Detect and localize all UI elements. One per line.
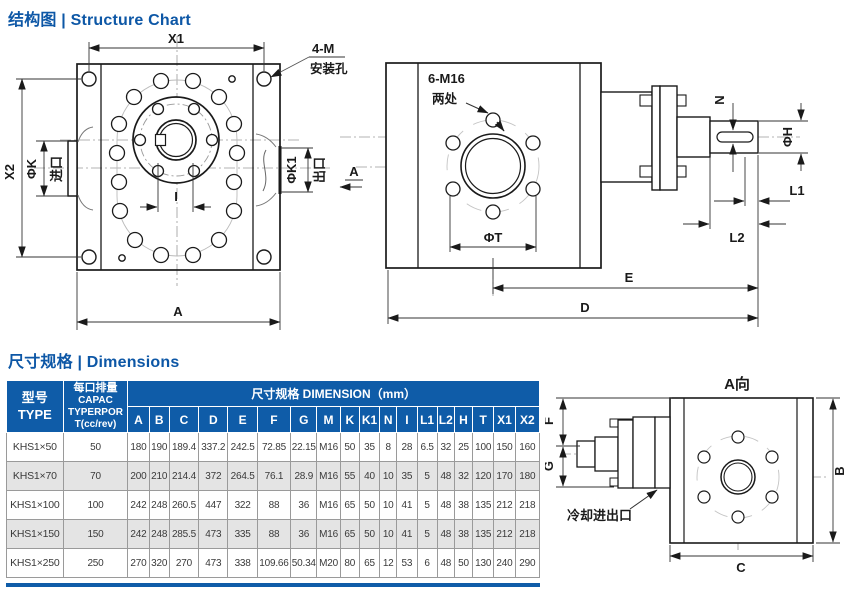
col-header-type-en: TYPE bbox=[7, 407, 63, 423]
col-K: K bbox=[340, 407, 359, 433]
dim-cell: 260.5 bbox=[169, 491, 198, 520]
dim-cell: 100 bbox=[473, 433, 494, 462]
dim-cell: 35 bbox=[397, 462, 417, 491]
col-L2: L2 bbox=[437, 407, 454, 433]
dim-l1 bbox=[714, 155, 790, 327]
dim-cell: 447 bbox=[199, 491, 228, 520]
dim-cell: 10 bbox=[380, 520, 397, 549]
dim-cell: 320 bbox=[149, 549, 169, 578]
dim-cell: 50.34 bbox=[291, 549, 317, 578]
dim-cell: M16 bbox=[317, 433, 340, 462]
bolt-note-label: 6-M16 bbox=[428, 71, 465, 86]
dim-g-label: G bbox=[545, 461, 556, 471]
cooling-port-label: 冷却进出口 bbox=[567, 508, 632, 523]
dim-cell: 32 bbox=[454, 462, 472, 491]
dim-cell: 25 bbox=[454, 433, 472, 462]
capacity-line: T(cc/rev) bbox=[64, 419, 128, 431]
front-view: X1 X2 A I Φ bbox=[2, 31, 363, 330]
dim-cell: 135 bbox=[473, 491, 494, 520]
dim-cell: 218 bbox=[515, 491, 539, 520]
dim-cell: 38 bbox=[454, 491, 472, 520]
dim-cell: 41 bbox=[397, 520, 417, 549]
type-cell: KHS1×250 bbox=[7, 549, 64, 578]
col-E: E bbox=[228, 407, 257, 433]
dim-cell: 48 bbox=[437, 462, 454, 491]
dimensions-section-title: 尺寸规格 | Dimensions bbox=[8, 348, 179, 372]
catalog-page: 结构图 | Structure Chart bbox=[0, 0, 850, 592]
capacity-line: TYPERPOR bbox=[64, 407, 128, 419]
dim-cell: M16 bbox=[317, 520, 340, 549]
dim-cell: 109.66 bbox=[257, 549, 290, 578]
dim-cell: 5 bbox=[417, 462, 437, 491]
dim-cell: 212 bbox=[494, 491, 515, 520]
type-cell: KHS1×50 bbox=[7, 433, 64, 462]
structure-chart-drawing: X1 X2 A I Φ bbox=[0, 0, 850, 348]
bolt-note-places: 两处 bbox=[432, 91, 458, 106]
table-header-row-1: 型号 TYPE 每口排量 CAPAC TYPERPOR T(cc/rev) 尺寸… bbox=[7, 381, 540, 407]
view-a-drawing: A向 bbox=[545, 372, 850, 592]
col-C: C bbox=[169, 407, 198, 433]
dim-cell: 40 bbox=[359, 462, 379, 491]
table-bottom-rule bbox=[6, 583, 540, 587]
type-cell: KHS1×70 bbox=[7, 462, 64, 491]
col-header-type: 型号 TYPE bbox=[7, 381, 64, 433]
dim-cell: 65 bbox=[359, 549, 379, 578]
dim-cell: 242 bbox=[128, 491, 149, 520]
dim-f-label: F bbox=[545, 417, 556, 425]
dim-cell: 270 bbox=[128, 549, 149, 578]
dim-cell: 5 bbox=[417, 520, 437, 549]
capacity-cell: 250 bbox=[63, 549, 128, 578]
dim-a bbox=[77, 272, 280, 330]
dim-cell: 88 bbox=[257, 491, 290, 520]
dim-cell: 160 bbox=[515, 433, 539, 462]
col-M: M bbox=[317, 407, 340, 433]
dim-cell: 5 bbox=[417, 491, 437, 520]
view-a-title: A向 bbox=[724, 375, 750, 393]
col-F: F bbox=[257, 407, 290, 433]
dim-b-label: B bbox=[832, 466, 847, 475]
dim-cell: 248 bbox=[149, 520, 169, 549]
dim-cell: 242 bbox=[128, 520, 149, 549]
dim-phih-label: ΦH bbox=[780, 127, 795, 147]
shaft-assembly-view-a bbox=[577, 417, 670, 488]
dim-cell: M16 bbox=[317, 491, 340, 520]
dim-i-label: I bbox=[174, 189, 178, 204]
dim-cell: 337.2 bbox=[199, 433, 228, 462]
mounting-note-text: 安装孔 bbox=[310, 61, 348, 76]
dim-cell: 214.4 bbox=[169, 462, 198, 491]
dim-l1-label: L1 bbox=[789, 183, 804, 198]
dim-c-label: C bbox=[736, 560, 746, 575]
dim-e-label: E bbox=[625, 270, 634, 285]
col-header-type-zh: 型号 bbox=[7, 390, 63, 406]
type-cell: KHS1×100 bbox=[7, 491, 64, 520]
col-H: H bbox=[454, 407, 472, 433]
keyway-side bbox=[717, 132, 753, 142]
dim-cell: 264.5 bbox=[228, 462, 257, 491]
capacity-cell: 70 bbox=[63, 462, 128, 491]
dim-cell: 76.1 bbox=[257, 462, 290, 491]
dim-cell: 322 bbox=[228, 491, 257, 520]
dim-cell: 6.5 bbox=[417, 433, 437, 462]
dim-cell: 22.15 bbox=[291, 433, 317, 462]
dim-l2 bbox=[683, 157, 786, 229]
dim-cell: 36 bbox=[291, 491, 317, 520]
col-L1: L1 bbox=[417, 407, 437, 433]
dim-cell: 135 bbox=[473, 520, 494, 549]
dim-cell: 10 bbox=[380, 462, 397, 491]
mounting-note-count: 4-M bbox=[312, 41, 334, 56]
dim-cell: 473 bbox=[199, 520, 228, 549]
dim-cell: 248 bbox=[149, 491, 169, 520]
section-a-marker: A bbox=[340, 164, 363, 187]
dim-cell: 10 bbox=[380, 491, 397, 520]
inlet-label: 进口 bbox=[49, 156, 64, 182]
table-row: KHS1×150 150 242 248 285.5 473 335 88 36… bbox=[7, 520, 540, 549]
dim-cell: 180 bbox=[515, 462, 539, 491]
section-a-label: A bbox=[349, 164, 359, 179]
dim-cell: 28.9 bbox=[291, 462, 317, 491]
capacity-cell: 150 bbox=[63, 520, 128, 549]
dim-l2-label: L2 bbox=[729, 230, 744, 245]
dim-cell: 50 bbox=[359, 491, 379, 520]
dim-cell: 180 bbox=[128, 433, 149, 462]
table-row: KHS1×100 100 242 248 260.5 447 322 88 36… bbox=[7, 491, 540, 520]
mounting-note: 4-M 安装孔 bbox=[271, 41, 348, 77]
cooling-port-note: 冷却进出口 bbox=[567, 490, 657, 523]
dim-cell: 290 bbox=[515, 549, 539, 578]
dim-x2-label: X2 bbox=[2, 164, 17, 180]
dim-cell: 48 bbox=[437, 491, 454, 520]
dim-cell: 48 bbox=[437, 549, 454, 578]
dim-cell: 212 bbox=[494, 520, 515, 549]
dim-cell: 189.4 bbox=[169, 433, 198, 462]
dim-cell: 285.5 bbox=[169, 520, 198, 549]
dim-cell: 48 bbox=[437, 520, 454, 549]
dim-cell: 473 bbox=[199, 549, 228, 578]
table-row: KHS1×250 250 270 320 270 473 338 109.66 … bbox=[7, 549, 540, 578]
col-I: I bbox=[397, 407, 417, 433]
dim-phik-label: ΦK bbox=[24, 158, 39, 179]
dim-cell: M16 bbox=[317, 462, 340, 491]
dim-cell: 240 bbox=[494, 549, 515, 578]
dim-cell: 12 bbox=[380, 549, 397, 578]
dim-cell: 242.5 bbox=[228, 433, 257, 462]
col-A: A bbox=[128, 407, 149, 433]
dim-cell: 50 bbox=[340, 433, 359, 462]
dim-d-label: D bbox=[580, 300, 589, 315]
shaft-flange bbox=[133, 97, 219, 183]
dim-cell: 35 bbox=[359, 433, 379, 462]
dim-a-label: A bbox=[173, 304, 183, 319]
dim-cell: 120 bbox=[473, 462, 494, 491]
capacity-line: CAPAC bbox=[64, 395, 128, 407]
capacity-line: 每口排量 bbox=[64, 382, 128, 395]
col-header-capacity: 每口排量 CAPAC TYPERPOR T(cc/rev) bbox=[63, 381, 128, 433]
dim-cell: 335 bbox=[228, 520, 257, 549]
keyway-front bbox=[156, 135, 166, 146]
dim-cell: 50 bbox=[454, 549, 472, 578]
dim-cell: 210 bbox=[149, 462, 169, 491]
dim-cell: 200 bbox=[128, 462, 149, 491]
dim-cell: 130 bbox=[473, 549, 494, 578]
col-D: D bbox=[199, 407, 228, 433]
dim-cell: 170 bbox=[494, 462, 515, 491]
capacity-cell: 50 bbox=[63, 433, 128, 462]
dim-x1-label: X1 bbox=[168, 31, 184, 46]
dim-cell: 338 bbox=[228, 549, 257, 578]
dim-cell: 65 bbox=[340, 520, 359, 549]
col-header-dimension: 尺寸规格 DIMENSION（mm） bbox=[128, 381, 540, 407]
dim-cell: 150 bbox=[494, 433, 515, 462]
col-B: B bbox=[149, 407, 169, 433]
dim-cell: 88 bbox=[257, 520, 290, 549]
dim-cell: 372 bbox=[199, 462, 228, 491]
shaft-assembly-side bbox=[601, 86, 758, 190]
dim-cell: 55 bbox=[340, 462, 359, 491]
dim-cell: 38 bbox=[454, 520, 472, 549]
dim-n-label: N bbox=[712, 95, 727, 104]
col-N: N bbox=[380, 407, 397, 433]
dim-cell: M20 bbox=[317, 549, 340, 578]
col-X2: X2 bbox=[515, 407, 539, 433]
dim-cell: 6 bbox=[417, 549, 437, 578]
type-cell: KHS1×150 bbox=[7, 520, 64, 549]
dim-cell: 53 bbox=[397, 549, 417, 578]
dim-cell: 8 bbox=[380, 433, 397, 462]
dim-cell: 72.85 bbox=[257, 433, 290, 462]
side-view: 6-M16 两处 ΦT N ΦH bbox=[340, 63, 808, 327]
dim-cell: 218 bbox=[515, 520, 539, 549]
dim-cell: 28 bbox=[397, 433, 417, 462]
dim-phik1-label: ΦK1 bbox=[284, 156, 299, 183]
outlet-label: 出口 bbox=[312, 157, 327, 183]
col-X1: X1 bbox=[494, 407, 515, 433]
dim-cell: 270 bbox=[169, 549, 198, 578]
dim-cell: 80 bbox=[340, 549, 359, 578]
capacity-cell: 100 bbox=[63, 491, 128, 520]
col-T: T bbox=[473, 407, 494, 433]
col-K1: K1 bbox=[359, 407, 379, 433]
dim-cell: 50 bbox=[359, 520, 379, 549]
table-row: KHS1×70 70 200 210 214.4 372 264.5 76.1 … bbox=[7, 462, 540, 491]
col-G: G bbox=[291, 407, 317, 433]
dim-cell: 41 bbox=[397, 491, 417, 520]
dim-phit-label: ΦT bbox=[484, 230, 503, 245]
dim-cell: 65 bbox=[340, 491, 359, 520]
dim-cell: 32 bbox=[437, 433, 454, 462]
dim-cell: 190 bbox=[149, 433, 169, 462]
dim-d bbox=[388, 270, 758, 324]
dimensions-table: 型号 TYPE 每口排量 CAPAC TYPERPOR T(cc/rev) 尺寸… bbox=[6, 380, 540, 578]
dim-cell: 36 bbox=[291, 520, 317, 549]
table-row: KHS1×50 50 180 190 189.4 337.2 242.5 72.… bbox=[7, 433, 540, 462]
